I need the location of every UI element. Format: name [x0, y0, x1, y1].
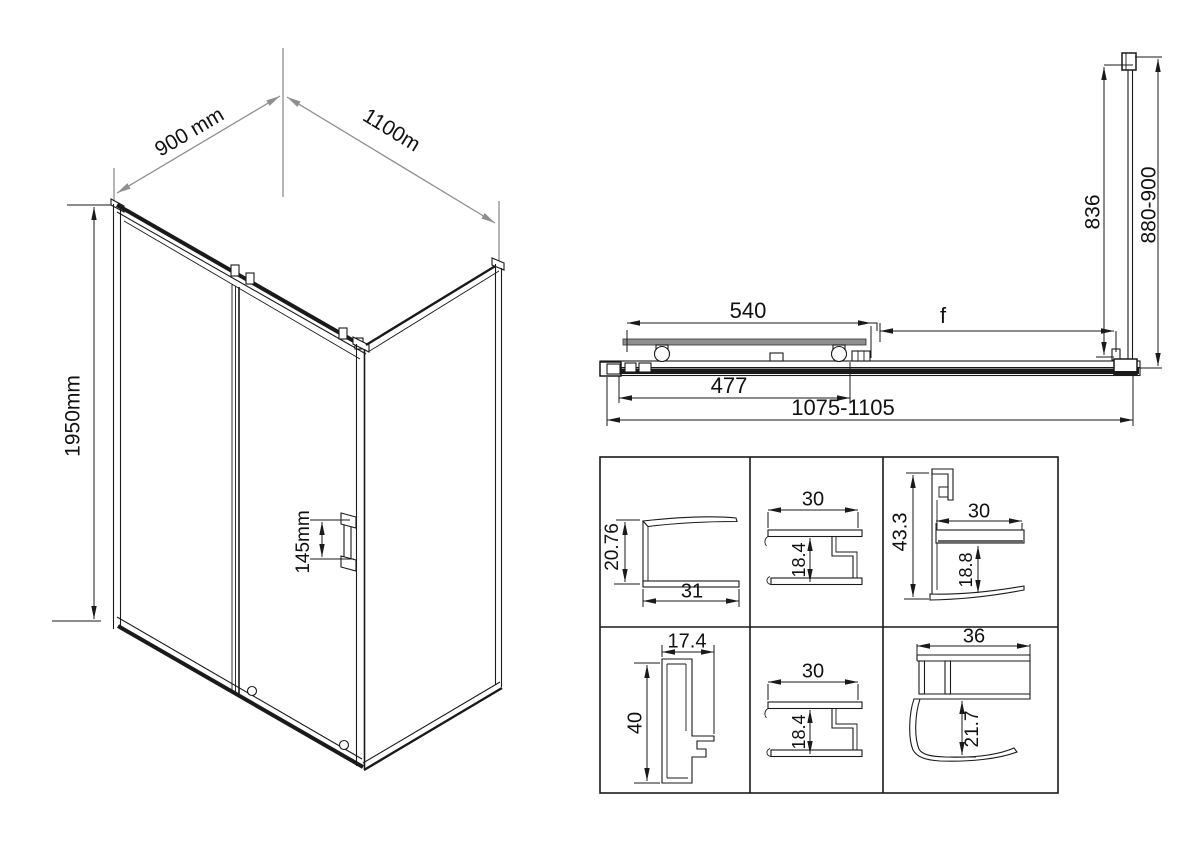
profile-c3-hook	[932, 469, 953, 500]
profile-c6-h-label: 21.7	[962, 711, 983, 748]
profile-c6-shape	[917, 655, 1030, 699]
profile-c2-shape	[765, 530, 862, 585]
plan-sliding-door	[623, 339, 870, 362]
bottom-guide	[340, 741, 349, 750]
profile-c1-w-label: 31	[681, 580, 703, 602]
plan-side-label: 880-900	[1138, 166, 1161, 243]
plan-inner-label: 836	[1082, 194, 1105, 229]
door-roller	[246, 273, 254, 284]
plan-glass-label: 477	[711, 373, 748, 398]
profile-grid: 20.76 31 30 18.4 4	[600, 457, 1058, 793]
plan-door-glass	[623, 339, 866, 345]
isometric-view: 900 mm 1100m 1950mm	[52, 48, 504, 770]
iso-height-label: 1950mm	[62, 375, 85, 457]
handle-bottom-mount	[341, 556, 356, 571]
profile-c3-blade	[930, 586, 1024, 600]
plan-door-end-bracket	[852, 351, 870, 361]
plan-top-wall-profile	[1122, 53, 1136, 70]
profile-c2-w-label: 30	[802, 488, 824, 510]
profile-c6: 36 21.7	[910, 625, 1030, 761]
plan-roller	[832, 347, 847, 362]
profile-c3-w-label: 30	[968, 500, 990, 522]
profile-c3: 43.3 30 18.8	[889, 469, 1024, 600]
shower-enclosure-drawing: 900 mm 1100m 1950mm	[0, 0, 1200, 844]
plan-roller	[655, 347, 670, 362]
plan-panel-label: f	[940, 303, 947, 328]
technical-drawing-page: 900 mm 1100m 1950mm	[0, 0, 1200, 844]
bottom-guide	[248, 687, 257, 696]
plan-total-label: 1075-1105	[791, 395, 895, 420]
plan-side-panel	[1112, 53, 1137, 375]
profile-c4: 17.4 40	[624, 630, 714, 783]
profile-c5-w-label: 30	[802, 660, 824, 682]
iso-depth-label: 900 mm	[151, 103, 228, 161]
profile-c5: 30 18.4	[765, 660, 862, 756]
iso-depth-dim-line	[117, 96, 280, 193]
profile-c5-shape	[765, 702, 862, 757]
profile-c1: 20.76 31	[602, 517, 739, 607]
plan-bottom-track	[600, 361, 1140, 376]
side-bottom-frame	[363, 682, 500, 763]
door-handle	[341, 513, 356, 571]
profile-c2: 30 18.4	[765, 488, 862, 584]
profile-c4-h-label: 40	[624, 712, 646, 734]
enclosure-side-face	[363, 258, 504, 770]
plan-view: 540 f 477 1075-1105 836 880-900	[600, 53, 1162, 426]
profile-c3-v-label: 43.3	[889, 513, 911, 552]
profile-c4-shape	[662, 659, 714, 783]
profile-c1-shape	[643, 517, 737, 527]
door-roller	[231, 265, 239, 276]
profile-c5-h-label: 18.4	[789, 714, 809, 749]
enclosure-front-face	[111, 199, 369, 769]
profile-c4-w-label: 17.4	[668, 630, 707, 652]
side-top-frame	[366, 265, 497, 345]
profile-c6-w-label: 36	[963, 625, 985, 647]
profile-c2-h-label: 18.4	[789, 542, 809, 577]
handle-dim-label: 145mm	[293, 510, 314, 573]
iso-width-label: 1100m	[359, 104, 424, 156]
profile-c3-h-label: 18.8	[956, 552, 976, 587]
plan-door-label: 540	[730, 298, 767, 323]
top-rail	[117, 205, 366, 348]
door-roller	[339, 328, 347, 339]
glass-top-edge	[124, 221, 360, 359]
plan-guide-block	[770, 353, 783, 361]
profile-c1-h-label: 20.76	[602, 523, 623, 571]
